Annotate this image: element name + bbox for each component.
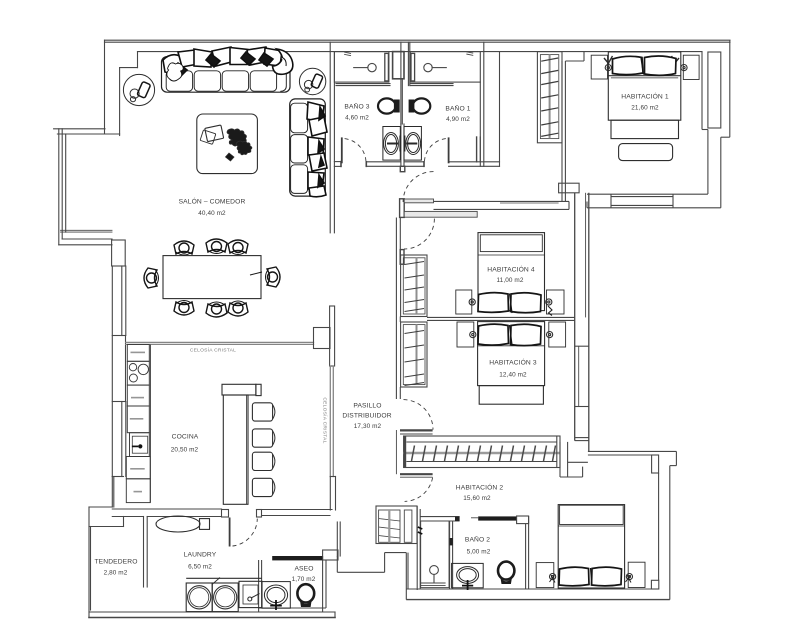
svg-text:ASEO: ASEO	[294, 565, 313, 572]
svg-text:12,40 m2: 12,40 m2	[499, 371, 527, 378]
svg-text:6,50 m2: 6,50 m2	[188, 564, 212, 571]
svg-text:4,60 m2: 4,60 m2	[345, 114, 369, 121]
svg-text:HABITACIÓN 1: HABITACIÓN 1	[621, 91, 669, 100]
svg-text:20,50 m2: 20,50 m2	[171, 446, 199, 453]
svg-text:HABITACIÓN 4: HABITACIÓN 4	[487, 264, 535, 273]
svg-text:BAÑO 1: BAÑO 1	[445, 104, 470, 113]
svg-text:TENDEDERO: TENDEDERO	[94, 558, 137, 565]
svg-text:SALÓN – COMEDOR: SALÓN – COMEDOR	[179, 197, 246, 206]
svg-text:17,30 m2: 17,30 m2	[354, 423, 382, 430]
svg-text:CELOSÍA CRISTAL: CELOSÍA CRISTAL	[322, 397, 329, 443]
svg-text:PASILLO: PASILLO	[353, 402, 381, 409]
svg-text:HABITACIÓN 3: HABITACIÓN 3	[489, 358, 537, 367]
svg-text:CELOSÍA CRISTAL: CELOSÍA CRISTAL	[190, 347, 236, 354]
svg-text:HABITACIÓN 2: HABITACIÓN 2	[456, 483, 504, 492]
svg-text:DISTRIBUIDOR: DISTRIBUIDOR	[342, 413, 391, 420]
svg-text:LAUNDRY: LAUNDRY	[184, 552, 217, 559]
svg-text:40,40 m2: 40,40 m2	[198, 210, 226, 217]
svg-text:4,90 m2: 4,90 m2	[446, 116, 470, 123]
svg-text:5,00 m2: 5,00 m2	[467, 548, 491, 555]
svg-text:1,70 m2: 1,70 m2	[292, 576, 316, 583]
svg-text:BAÑO 2: BAÑO 2	[465, 534, 490, 543]
svg-text:15,60 m2: 15,60 m2	[463, 495, 491, 502]
svg-text:2,80 m2: 2,80 m2	[104, 569, 128, 576]
svg-text:COCINA: COCINA	[172, 434, 199, 441]
svg-text:21,60 m2: 21,60 m2	[631, 104, 659, 111]
svg-text:11,00 m2: 11,00 m2	[497, 277, 524, 284]
svg-text:BAÑO 3: BAÑO 3	[344, 102, 369, 111]
